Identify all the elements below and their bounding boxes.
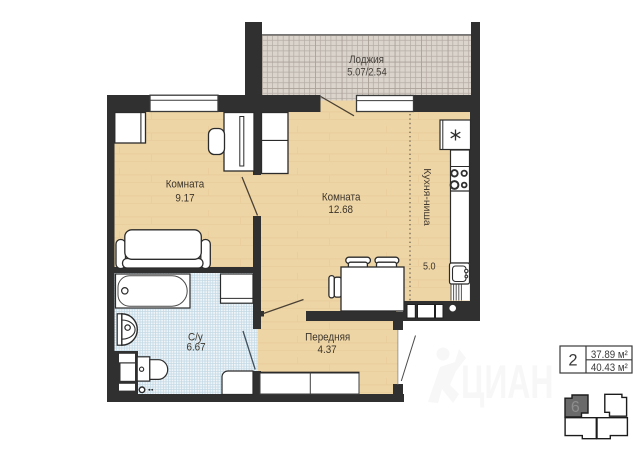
svg-text:37.89 м²: 37.89 м² [591,350,628,362]
svg-text:9.17: 9.17 [175,192,194,205]
svg-text:ЦИАН: ЦИАН [461,356,553,409]
svg-text:5.07/2.54: 5.07/2.54 [347,67,387,79]
svg-text:Комната: Комната [166,178,205,191]
svg-text:Лоджия: Лоджия [349,53,384,66]
svg-text:5.0: 5.0 [423,261,436,273]
svg-text:Комната: Комната [322,191,361,204]
svg-text:6: 6 [571,399,580,416]
svg-text:4.37: 4.37 [318,344,337,357]
svg-text:40.43 м²: 40.43 м² [591,362,628,374]
svg-text:12.68: 12.68 [328,204,353,217]
svg-text:Кухня-ниша: Кухня-ниша [421,168,433,226]
svg-text:6.67: 6.67 [186,341,205,354]
svg-text:Передняя: Передняя [305,331,350,344]
svg-text:2: 2 [568,351,577,369]
